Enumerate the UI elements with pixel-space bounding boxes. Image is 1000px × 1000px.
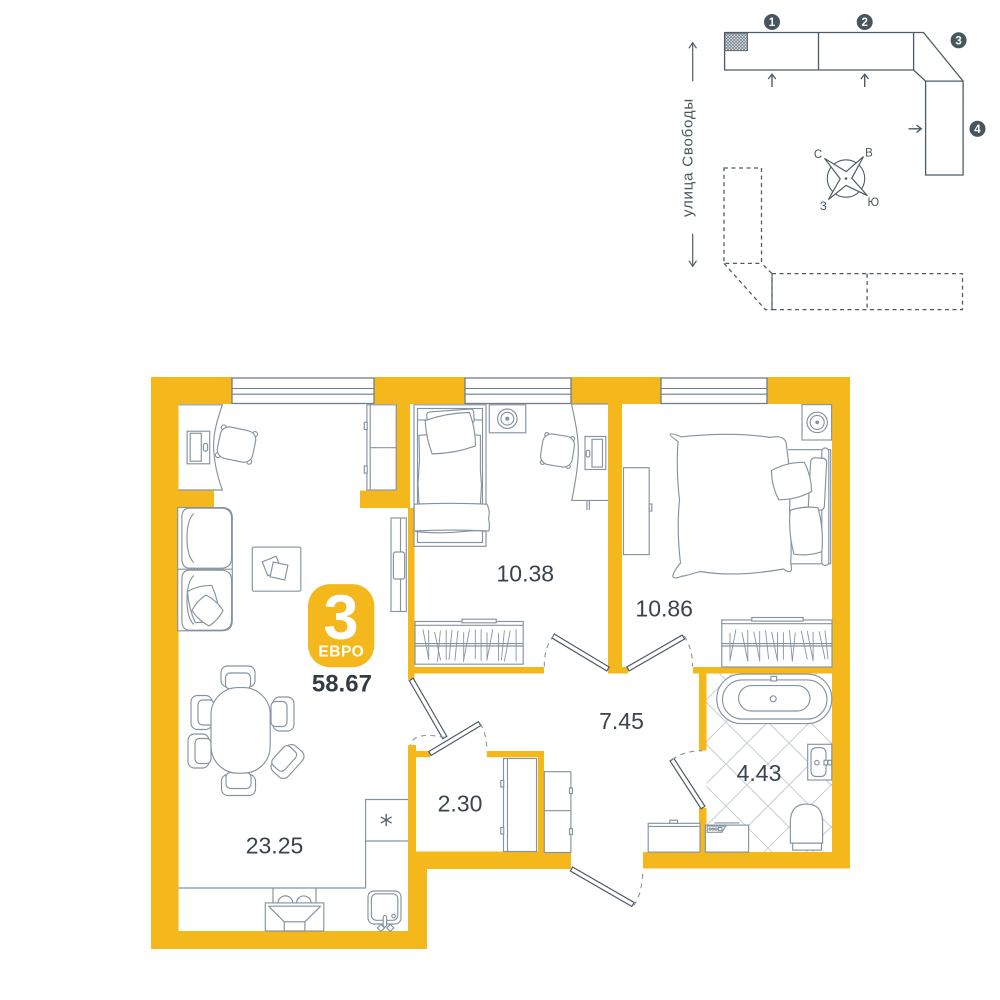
svg-text:58.67: 58.67: [312, 671, 372, 698]
svg-text:4.43: 4.43: [737, 760, 782, 786]
svg-text:1: 1: [769, 17, 776, 29]
svg-text:10.86: 10.86: [635, 596, 693, 622]
svg-text:7.45: 7.45: [599, 708, 644, 734]
svg-text:ЕВРО: ЕВРО: [318, 644, 364, 661]
svg-text:4: 4: [974, 124, 981, 136]
svg-text:10.38: 10.38: [497, 561, 555, 587]
svg-text:2: 2: [861, 17, 867, 29]
svg-text:Ю: Ю: [867, 197, 879, 209]
svg-text:23.25: 23.25: [246, 833, 304, 859]
svg-text:3: 3: [955, 36, 961, 48]
svg-text:С: С: [814, 149, 822, 161]
svg-text:3: 3: [323, 583, 358, 653]
svg-text:2.30: 2.30: [438, 791, 483, 817]
svg-text:В: В: [865, 148, 873, 160]
svg-text:З: З: [820, 201, 827, 213]
svg-text:улица Свободы: улица Свободы: [680, 98, 697, 217]
